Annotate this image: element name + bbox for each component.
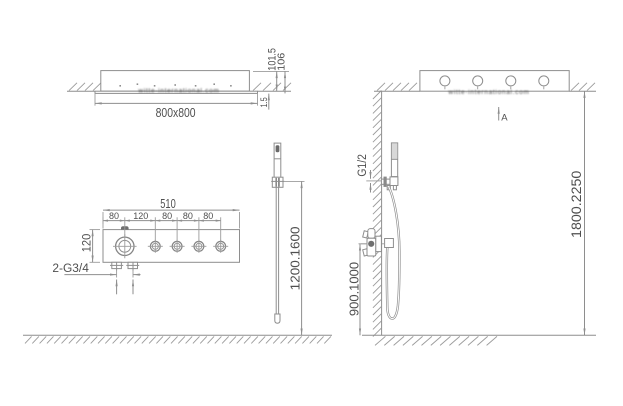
svg-text:120: 120 (133, 211, 148, 221)
svg-text:A: A (501, 113, 508, 124)
svg-text:1800.2250: 1800.2250 (569, 171, 584, 238)
svg-text:900.1000: 900.1000 (346, 262, 361, 316)
svg-text:120: 120 (81, 234, 93, 253)
svg-text:1.5: 1.5 (259, 97, 270, 107)
svg-text:80: 80 (183, 211, 193, 221)
svg-text:510: 510 (160, 197, 176, 211)
svg-text:G1/2: G1/2 (357, 154, 369, 177)
svg-text:2-G3/4: 2-G3/4 (52, 263, 89, 275)
svg-text:800x800: 800x800 (156, 106, 196, 120)
svg-text:80: 80 (109, 211, 119, 221)
svg-text:106: 106 (276, 53, 288, 71)
svg-text:1200.1600: 1200.1600 (288, 227, 303, 291)
svg-text:witte-international.com: witte-international.com (137, 88, 219, 95)
svg-text:80: 80 (203, 211, 213, 221)
svg-text:80: 80 (162, 211, 172, 221)
svg-text:witte-international.com: witte-international.com (447, 89, 529, 96)
